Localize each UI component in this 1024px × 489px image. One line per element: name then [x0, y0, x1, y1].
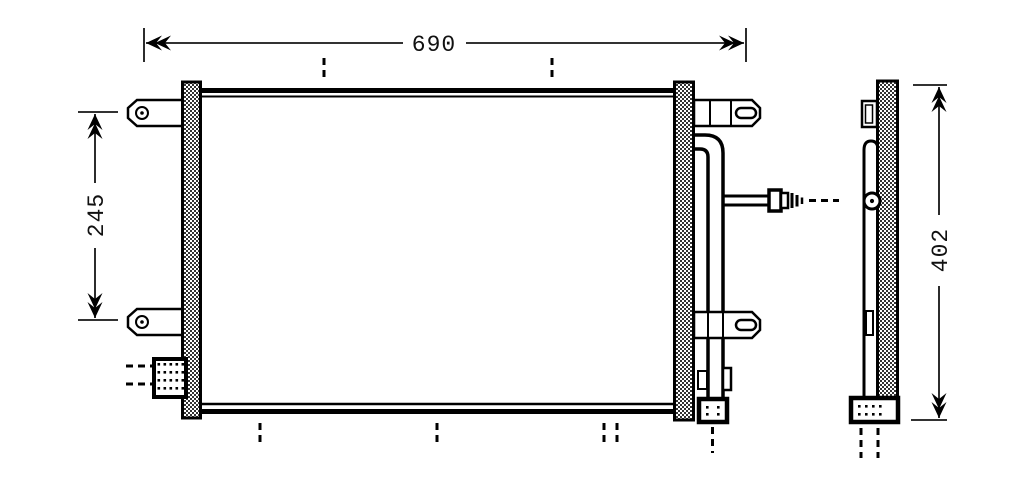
mounting-tab-top-right — [694, 100, 760, 126]
mounting-slot-icon — [736, 108, 756, 118]
right-side-tank — [675, 82, 694, 420]
thread-dot — [706, 406, 709, 409]
technical-drawing-canvas: 690 245 402 — [0, 0, 1024, 489]
core-top-edge — [200, 91, 675, 97]
side-mid-tab — [866, 311, 873, 335]
side-valve-center-icon — [870, 199, 874, 203]
dimension-side-height: 402 — [911, 85, 954, 420]
dimension-label-left-tab-spacing: 245 — [84, 193, 110, 237]
valve-neck — [781, 193, 788, 208]
inlet-connector-body — [154, 359, 186, 397]
thread-dot — [872, 405, 875, 408]
mounting-tab-mid-right — [694, 312, 760, 338]
dimension-top-width: 690 — [144, 28, 746, 62]
refrigerant-pipe — [694, 135, 723, 399]
thread-dot — [717, 413, 720, 416]
centerline-ticks — [260, 58, 617, 447]
valve-body — [769, 190, 781, 211]
side-view — [851, 81, 898, 458]
mounting-tab-top-left — [128, 100, 183, 126]
mounting-tab-bottom-left — [128, 309, 183, 335]
side-valve — [864, 193, 880, 209]
thread-dot — [879, 405, 882, 408]
core-bottom-edge — [200, 404, 675, 412]
pipe-bracket-left — [698, 371, 707, 389]
pipe-inner-wall — [694, 149, 708, 399]
side-top-tab — [862, 101, 877, 127]
thread-dot — [717, 406, 720, 409]
thread-dot — [858, 405, 861, 408]
thread-dot — [858, 413, 861, 416]
thread-dot — [872, 413, 875, 416]
thread-dot — [879, 413, 882, 416]
pipe-bottom-fitting-body — [699, 399, 727, 422]
side-bottom-fitting — [851, 398, 898, 458]
pipe-bracket — [698, 368, 731, 390]
inlet-connector — [126, 359, 186, 397]
service-valve — [723, 190, 839, 211]
pipe-bracket-right — [723, 368, 731, 390]
thread-dot — [865, 413, 868, 416]
side-bottom-fitting-body — [851, 398, 898, 422]
thread-dot — [865, 405, 868, 408]
condenser-drawing: 690 245 402 — [0, 0, 1024, 489]
dimension-label-top-width: 690 — [412, 32, 456, 58]
dimension-left-tab-spacing: 245 — [78, 112, 118, 320]
front-view — [126, 58, 839, 453]
side-pipe — [864, 141, 878, 399]
mounting-hole-center-icon — [140, 111, 144, 115]
dimension-label-side-height: 402 — [928, 228, 954, 272]
side-body — [878, 81, 898, 420]
thread-dot — [706, 413, 709, 416]
pipe-bottom-fitting — [699, 399, 727, 453]
mounting-slot-icon — [736, 320, 756, 330]
mounting-hole-center-icon — [140, 320, 144, 324]
